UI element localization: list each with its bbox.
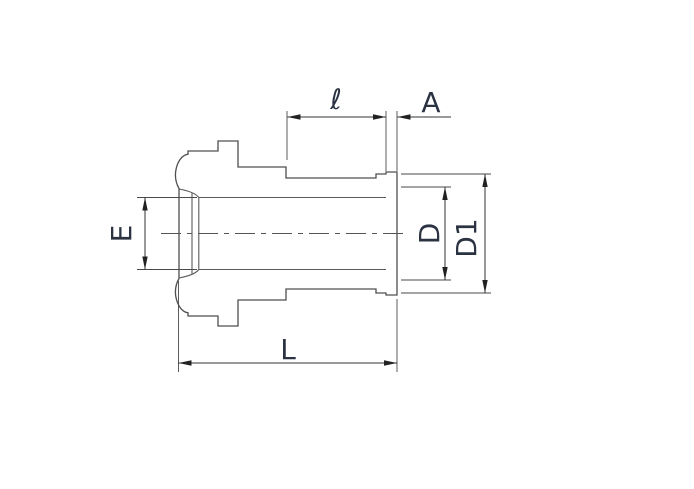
arrowhead-up-icon bbox=[442, 187, 447, 200]
dimension-overall-length: L bbox=[179, 333, 398, 366]
label-stub-length: ℓ bbox=[329, 83, 342, 116]
drawing-canvas: ℓ A E D D1 bbox=[0, 0, 694, 489]
flare-curve-top bbox=[179, 189, 199, 198]
arrowhead-left-icon bbox=[179, 360, 192, 365]
label-face-bore: D bbox=[413, 223, 446, 245]
dimension-collar-diameter: D1 bbox=[450, 174, 488, 293]
dimension-bore-diameter: E bbox=[105, 198, 148, 270]
arrowhead-right-icon bbox=[373, 114, 386, 119]
arrowhead-up-icon bbox=[142, 198, 147, 211]
dimension-face-bore: D bbox=[413, 187, 448, 280]
arrowhead-left-icon bbox=[288, 114, 301, 119]
arrowhead-up-icon bbox=[482, 174, 487, 187]
arrowhead-right-icon bbox=[384, 360, 397, 365]
arrowhead-left-icon bbox=[398, 114, 411, 119]
dimension-collar-width: A bbox=[398, 86, 452, 120]
dimension-stub-length: ℓ bbox=[288, 83, 387, 120]
arrowhead-down-icon bbox=[482, 280, 487, 293]
technical-drawing: ℓ A E D D1 bbox=[0, 0, 694, 489]
label-collar-diameter: D1 bbox=[450, 218, 483, 257]
arrowhead-down-icon bbox=[142, 257, 147, 270]
label-bore-diameter: E bbox=[105, 225, 138, 243]
flare-curve-bottom bbox=[179, 270, 199, 279]
label-collar-width: A bbox=[421, 86, 440, 119]
arrowhead-down-icon bbox=[442, 267, 447, 280]
label-overall-length: L bbox=[280, 333, 296, 366]
